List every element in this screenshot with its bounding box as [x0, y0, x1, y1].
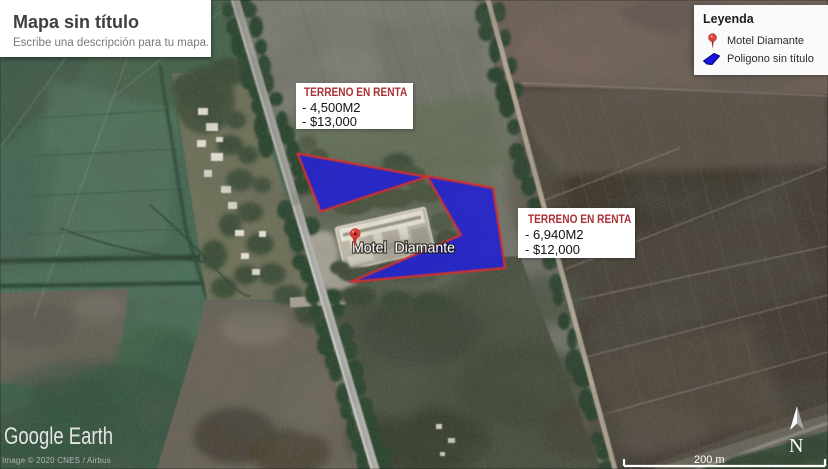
svg-text:Motel Diamante: Motel Diamante: [352, 240, 455, 257]
svg-text:N: N: [789, 435, 803, 455]
svg-text:Google Earth: Google Earth: [4, 423, 113, 450]
svg-text:200 m: 200 m: [694, 454, 725, 466]
